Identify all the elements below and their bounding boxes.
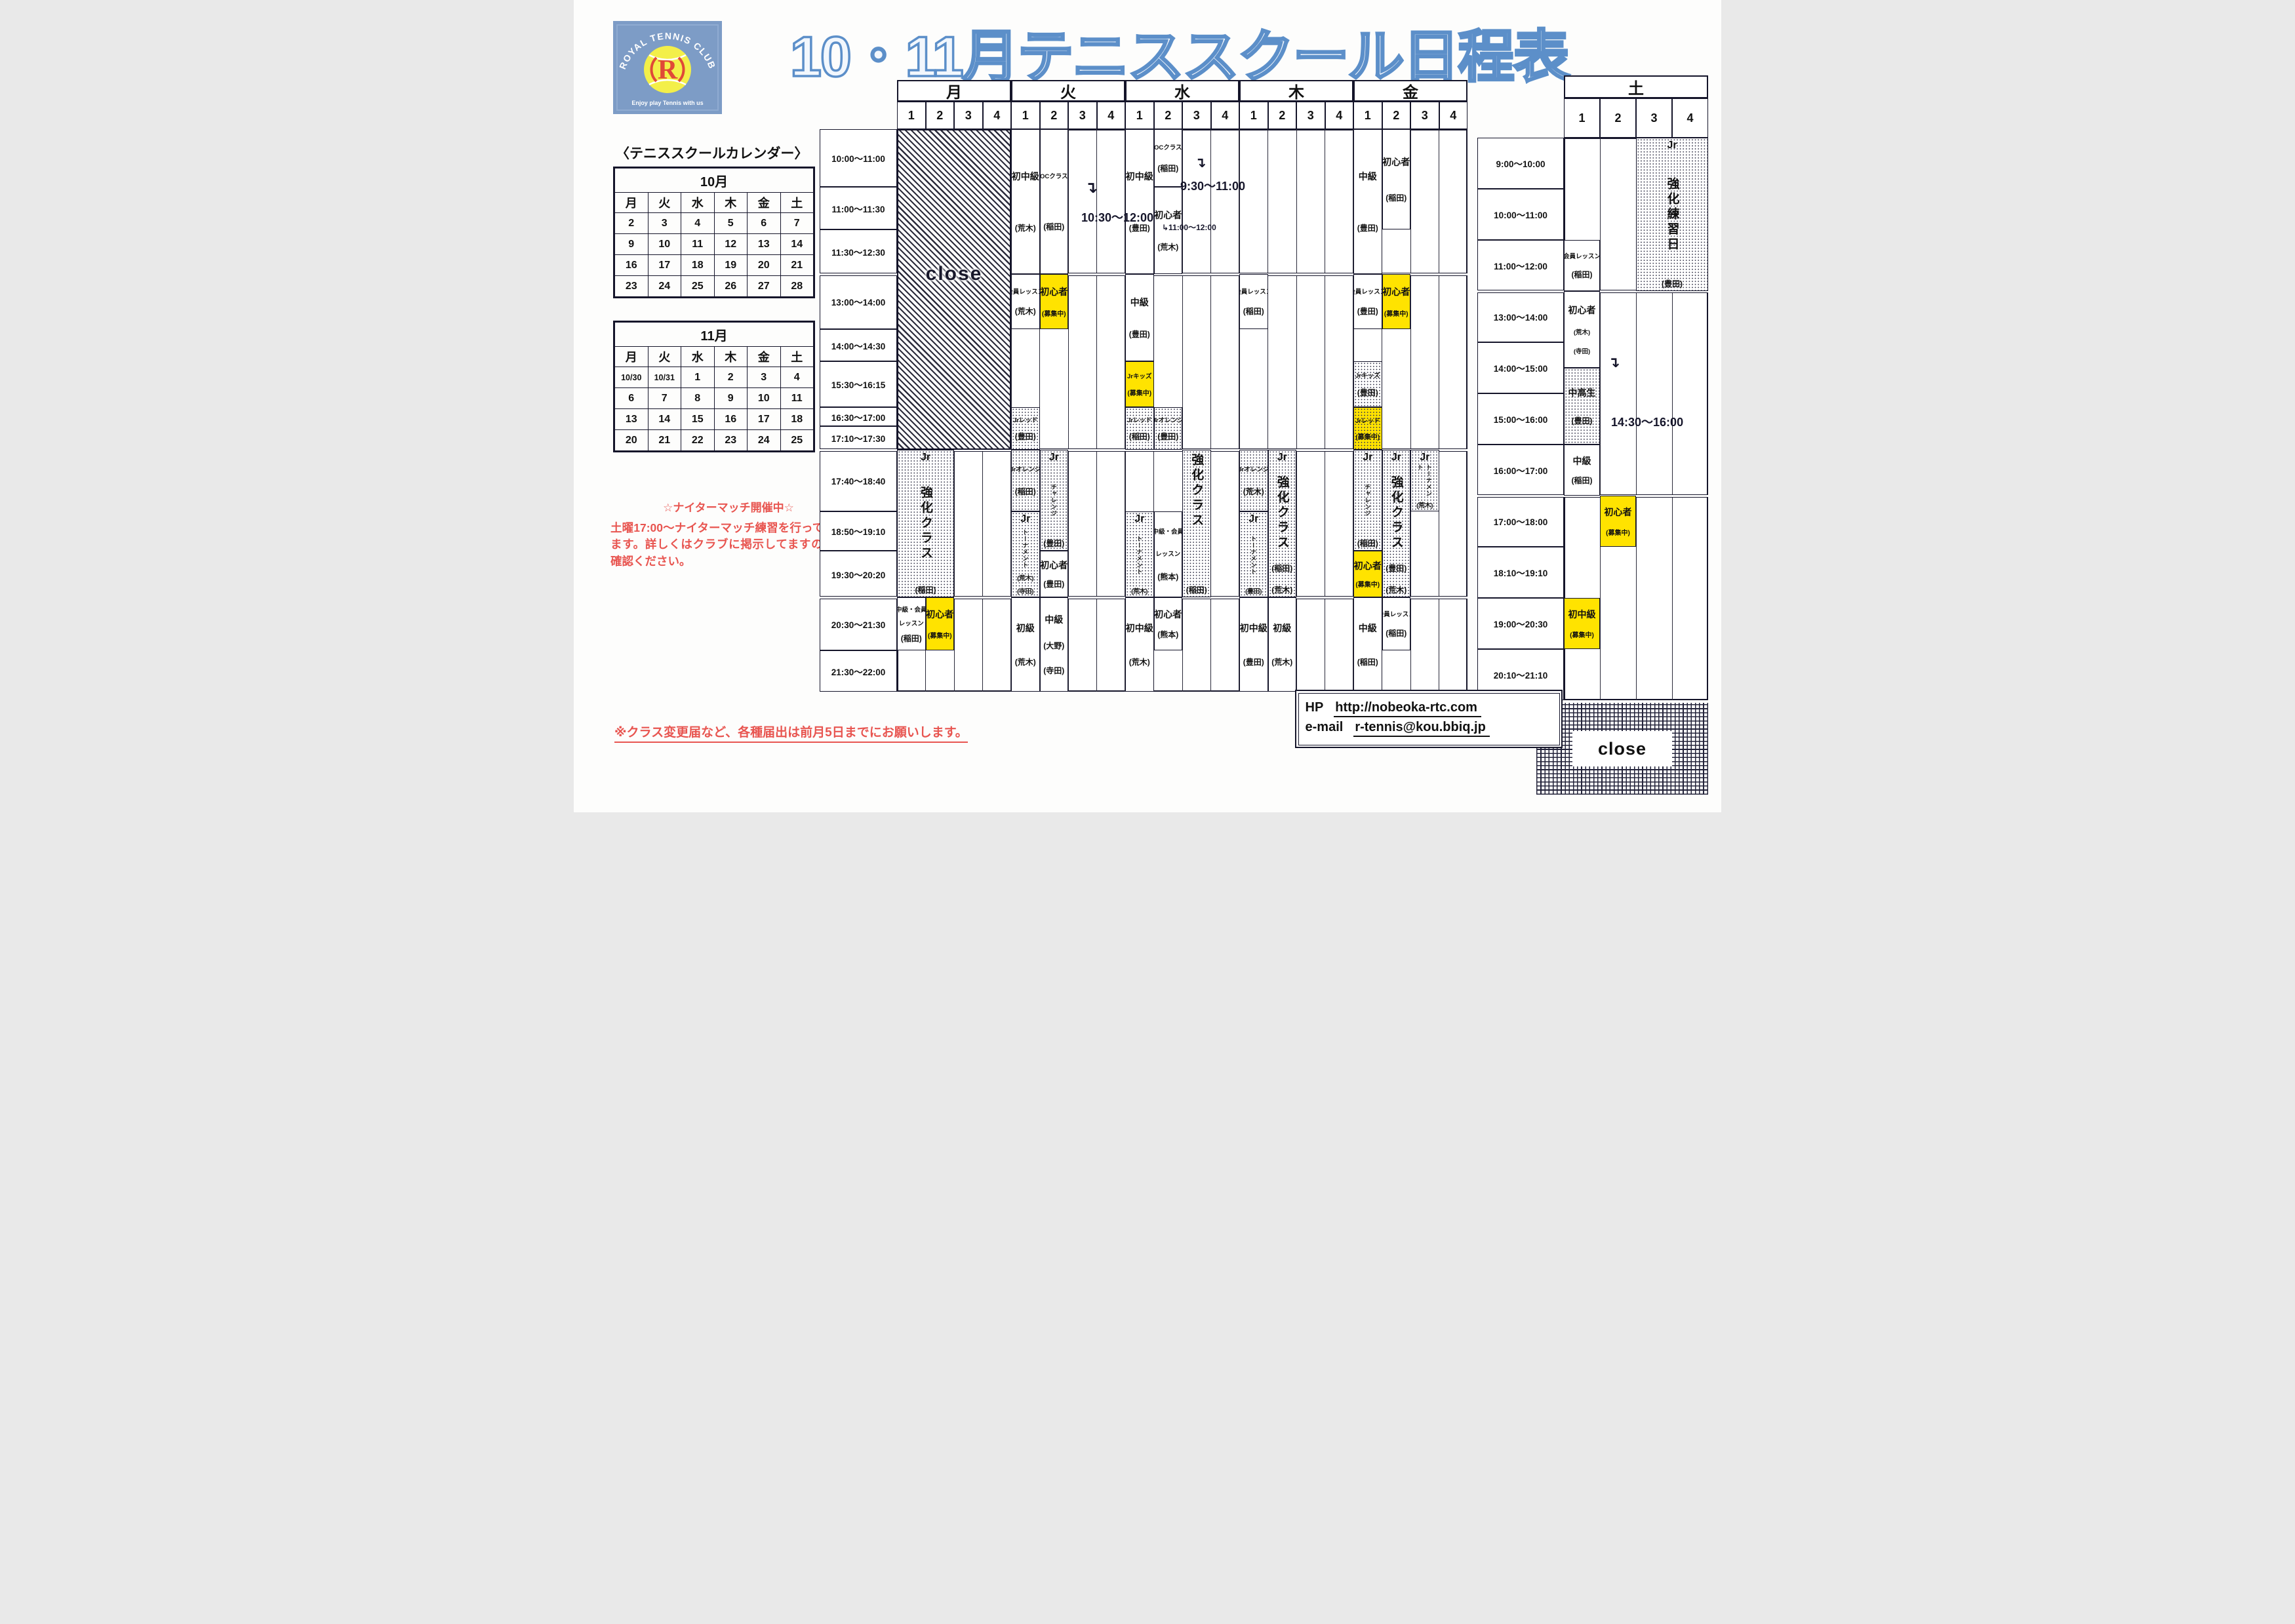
calendar-title: 11月 — [615, 323, 814, 347]
calendar-dow: 金 — [748, 347, 781, 367]
cell-text: (豊田) — [1157, 431, 1178, 442]
calendar-dow: 金 — [748, 193, 781, 213]
calendar-day[interactable]: 25 — [681, 276, 715, 297]
cell-text: 初中級 — [1568, 608, 1596, 621]
hp-label: HP — [1306, 700, 1324, 715]
cell-text: (寺田) — [1017, 586, 1033, 595]
cell-text: トーナメント — [1249, 536, 1258, 575]
schedule-cell[interactable]: 初心者(募集中) — [1382, 274, 1411, 329]
cell-text: 初心者 — [1568, 304, 1596, 317]
saturday-cell[interactable]: Jr強化練習日(豊田) — [1636, 138, 1708, 291]
schedule-cell[interactable]: 会員レッスン(豊田) — [1353, 274, 1382, 329]
cell-text: Jrレッド — [1355, 416, 1380, 425]
cell-text: (荒木) — [1015, 222, 1036, 233]
night-match-note: ☆ナイターマッチ開催中☆ 土曜17:00～ナイターマッチ練習を行っております。詳… — [610, 498, 847, 570]
close-label: close — [1572, 731, 1672, 766]
cell-text: (荒木) — [1416, 500, 1433, 509]
cell-text: レッスン — [899, 618, 924, 627]
cell-text: 初心者 — [1154, 208, 1182, 222]
cell-text: 初級 — [1273, 622, 1291, 635]
court-number: 1 — [897, 102, 926, 129]
calendar-day[interactable]: 11 — [780, 388, 814, 409]
cell-text: (稲田) — [1386, 627, 1407, 639]
cell-text: チャレンジ — [1363, 484, 1372, 517]
schedule-cell[interactable]: 初心者(稲田) — [1382, 129, 1411, 229]
cell-text: (稲田) — [1572, 269, 1593, 280]
calendar-day[interactable]: 23 — [615, 276, 649, 297]
calendar-day[interactable]: 10 — [648, 234, 681, 255]
cell-text: (稲田) — [915, 584, 936, 595]
calendar-dow: 月 — [615, 193, 649, 213]
cell-text: (稲田) — [1386, 192, 1407, 203]
calendar-day[interactable]: 5 — [714, 213, 748, 234]
time-annotation: 14:30～16:00 — [1611, 413, 1683, 430]
calendar-day[interactable]: 13 — [615, 409, 649, 430]
contact-box: HP http://nobeoka-rtc.com e-mail r-tenni… — [1295, 690, 1563, 748]
night-match-body: 土曜17:00～ナイターマッチ練習を行っております。詳しくはクラブに掲示してます… — [610, 520, 847, 570]
calendar-day[interactable]: 26 — [714, 276, 748, 297]
cell-text: 中級 — [1130, 296, 1149, 309]
day-header-4: 金 — [1353, 80, 1467, 102]
calendar-day[interactable]: 13 — [748, 234, 781, 255]
day-header-1: 火 — [1011, 80, 1125, 102]
calendar-day[interactable]: 1 — [681, 367, 715, 388]
court-number: 1 — [1011, 102, 1040, 129]
calendar-day[interactable]: 2 — [714, 367, 748, 388]
schedule-cell[interactable]: 初級(荒木) — [1011, 597, 1040, 692]
calendar-october: 10月月火水木金土2345679101112131416171819202123… — [613, 167, 815, 298]
cell-text: 初心者 — [1154, 608, 1182, 621]
schedule-cell[interactable]: Jr強化クラス(稲田)(荒木) — [1268, 450, 1297, 597]
schedule-cell[interactable]: 会員レッスン(荒木) — [1011, 274, 1040, 329]
court-number: 4 — [983, 102, 1012, 129]
calendar-day[interactable]: 22 — [681, 430, 715, 451]
calendar-day[interactable]: 21 — [648, 430, 681, 451]
night-match-heading: ☆ナイターマッチ開催中☆ — [610, 498, 847, 515]
logo-tagline: Enjoy play Tennis with us — [631, 100, 703, 106]
schedule-cell[interactable]: Jrキッズ(募集中) — [1125, 361, 1154, 407]
court-number: 3 — [954, 102, 983, 129]
schedule-cell[interactable]: Jrキッズ(豊田) — [1353, 361, 1382, 407]
hp-url[interactable]: http://nobeoka-rtc.com — [1334, 700, 1481, 717]
saturday-cell[interactable]: 初中級(募集中) — [1564, 598, 1600, 649]
cell-text: (荒木) — [1131, 586, 1147, 595]
cell-text: (募集中) — [1606, 527, 1630, 537]
calendar-dow: 木 — [714, 193, 748, 213]
schedule-cell[interactable]: close — [897, 129, 1011, 450]
schedule-cell[interactable]: 初中級(荒木) — [1011, 129, 1040, 274]
cell-text: 初心者 — [1040, 285, 1068, 298]
cell-text: 初心者 — [1382, 155, 1410, 168]
schedule-cell[interactable]: Jrトーナメント(荒木) — [1125, 511, 1154, 597]
schedule-cell[interactable]: 強化クラス(稲田) — [1182, 450, 1211, 597]
calendar-day[interactable]: 24 — [748, 430, 781, 451]
schedule-cell[interactable]: Jrレッド(豊田) — [1011, 407, 1040, 450]
schedule-cell[interactable]: 中級(稲田) — [1353, 597, 1382, 692]
court-number: 4 — [1325, 102, 1354, 129]
schedule-cell[interactable]: Jrオレンジ(荒木) — [1239, 450, 1268, 511]
cell-text: (荒木) — [1015, 656, 1036, 667]
cell-text: 中級 — [1359, 622, 1377, 635]
time-slot: 14:00～15:00 — [1477, 342, 1564, 393]
calendar-day[interactable]: 17 — [648, 255, 681, 276]
cell-text: (豊田) — [1662, 278, 1683, 289]
calendar-dow: 火 — [648, 347, 681, 367]
schedule-cell[interactable]: Jrオレンジ(豊田) — [1154, 407, 1183, 450]
schedule-sheet: ROYAL TENNIS CLUB R Enjoy play Tennis wi… — [574, 0, 1721, 812]
calendar-day[interactable]: 6 — [748, 213, 781, 234]
calendar-day[interactable]: 15 — [681, 409, 715, 430]
schedule-cell[interactable]: 初中級(豊田) — [1239, 597, 1268, 692]
schedule-cell[interactable]: 中級(豊田) — [1353, 129, 1382, 274]
cell-text: (稲田) — [1357, 656, 1378, 667]
time-slot: 17:40～18:40 — [820, 450, 897, 511]
close-label: close — [926, 263, 983, 285]
time-slot: 13:00～14:00 — [820, 274, 897, 329]
cell-text: (稲田) — [1357, 538, 1378, 549]
calendar-dow: 水 — [681, 347, 715, 367]
email-address[interactable]: r-tennis@kou.bbiq.jp — [1353, 720, 1490, 737]
cell-text: Jrキッズ — [1127, 371, 1151, 380]
cell-text: 初中級 — [1126, 622, 1153, 635]
cell-text: 初級 — [1016, 622, 1035, 635]
calendar-november: 11月月火水木金土10/3010/31123467891011131415161… — [613, 321, 815, 452]
cell-text: 初中級 — [1012, 170, 1039, 183]
cell-text: トーナメント — [1135, 536, 1144, 575]
calendar-day[interactable]: 16 — [615, 255, 649, 276]
cell-text: (豊田) — [1129, 328, 1150, 340]
cell-text: (寺田) — [1574, 346, 1590, 355]
cell-text: Jrオレンジ — [1239, 464, 1268, 473]
court-number: 2 — [926, 102, 955, 129]
grid-line — [1325, 129, 1325, 692]
time-slot: 9:00～10:00 — [1477, 138, 1564, 189]
court-number: 4 — [1439, 102, 1468, 129]
time-slot: 11:30～12:30 — [820, 229, 897, 274]
cell-text: Jr — [1134, 513, 1144, 525]
court-number: 3 — [1068, 102, 1097, 129]
day-header-sat: 土 — [1564, 75, 1708, 98]
cell-text: 中級 — [1045, 613, 1063, 626]
schedule-cell[interactable]: OCクラス(稲田) — [1040, 129, 1069, 274]
cell-text: (荒木) — [1574, 327, 1590, 336]
time-slot: 17:00～18:00 — [1477, 496, 1564, 547]
court-number: 1 — [1353, 102, 1382, 129]
calendar-day[interactable]: 27 — [748, 276, 781, 297]
time-slot: 19:30～20:20 — [820, 551, 897, 597]
cell-text: (豊田) — [1357, 306, 1378, 317]
calendar-day[interactable]: 19 — [714, 255, 748, 276]
cell-text: 会員レッスン — [1382, 609, 1411, 618]
cell-text: (豊田) — [1572, 415, 1593, 426]
calendar-day[interactable]: 18 — [780, 409, 814, 430]
cell-text: (稲田) — [1243, 306, 1264, 317]
grid-line — [1439, 129, 1439, 692]
calendar-dow: 土 — [780, 347, 814, 367]
deadline-note: ※クラス変更届など、各種届出は前月5日までにお願いします。 — [614, 723, 968, 743]
calendar-dow: 火 — [648, 193, 681, 213]
cell-text: 中級・会員 — [1154, 526, 1183, 536]
calendar-day[interactable]: 10/31 — [648, 367, 681, 388]
cell-text: 中級 — [1573, 454, 1591, 467]
calendar-day[interactable]: 24 — [648, 276, 681, 297]
calendar-day[interactable]: 16 — [714, 409, 748, 430]
cell-text: (豊田) — [1357, 222, 1378, 233]
time-slot: 10:00～11:00 — [820, 129, 897, 187]
cell-text: (熊本) — [1157, 629, 1178, 640]
cell-text: Jr — [1020, 513, 1030, 525]
schedule-cell[interactable]: Jr強化クラス(豊田)(荒木) — [1382, 450, 1411, 597]
calendar-day[interactable]: 14 — [780, 234, 814, 255]
cell-text: (荒木) — [1157, 241, 1178, 252]
cell-text: Jr — [1248, 513, 1258, 525]
calendar-day[interactable]: 10 — [748, 388, 781, 409]
cell-text: 初心者 — [926, 608, 953, 621]
court-number: 4 — [1672, 98, 1708, 138]
saturday-cell[interactable]: 初心者(募集中) — [1600, 496, 1636, 547]
time-slot: 21:30～22:00 — [820, 650, 897, 692]
cell-text: (荒木) — [1129, 656, 1150, 667]
schedule-cell[interactable]: 初級(荒木) — [1268, 597, 1297, 692]
cell-text: Jr — [1420, 452, 1429, 464]
calendar-day[interactable]: 4 — [681, 213, 715, 234]
calendar-day[interactable]: 23 — [714, 430, 748, 451]
cell-text: (稲田) — [901, 633, 922, 644]
cell-text: Jrオレンジ — [1011, 464, 1040, 473]
court-number: 2 — [1154, 102, 1183, 129]
schedule-cell[interactable]: Jrチャレンジ(稲田) — [1353, 450, 1382, 551]
schedule-cell[interactable]: 中級(大野)(寺田) — [1040, 597, 1069, 692]
calendar-day[interactable]: 4 — [780, 367, 814, 388]
court-number: 3 — [1296, 102, 1325, 129]
court-number: 4 — [1097, 102, 1126, 129]
schedule-cell[interactable]: Jrレッド(稲田) — [1125, 407, 1154, 450]
schedule-cell[interactable]: 中級(豊田) — [1125, 274, 1154, 361]
calendar-day[interactable]: 9 — [615, 234, 649, 255]
time-slot: 13:00～14:00 — [1477, 291, 1564, 342]
cell-text: Jr — [1667, 140, 1677, 151]
court-number: 2 — [1040, 102, 1069, 129]
calendar-dow: 土 — [780, 193, 814, 213]
cell-text: Jrキッズ — [1355, 370, 1380, 380]
cell-text: (募集中) — [1127, 387, 1151, 397]
time-slot: 18:10～19:10 — [1477, 547, 1564, 598]
schedule-cell[interactable]: Jr強化クラス(稲田) — [897, 450, 954, 597]
court-number: 3 — [1410, 102, 1439, 129]
cell-text: (稲田) — [1157, 163, 1178, 174]
cell-text: (募集中) — [1570, 629, 1594, 639]
cell-text: (募集中) — [928, 630, 952, 640]
cell-text: 会員レッスン — [1564, 251, 1600, 260]
cell-text: (稲田) — [1015, 486, 1036, 497]
cell-text: (豊田) — [1386, 563, 1407, 574]
cell-text: (募集中) — [1384, 308, 1408, 318]
cell-text: トーナメント — [1021, 529, 1029, 568]
cell-text: レッスン — [1155, 549, 1180, 558]
calendar-dow: 木 — [714, 347, 748, 367]
cell-text: Jrレッド — [1013, 415, 1037, 424]
calendar-dow: 月 — [615, 347, 649, 367]
schedule-cell[interactable]: 初中級(豊田) — [1125, 129, 1154, 274]
email-label: e-mail — [1306, 720, 1344, 735]
cell-text: (稲田) — [1043, 221, 1064, 232]
cell-text: 初心者 — [1605, 505, 1632, 519]
time-slot: 15:30～16:15 — [820, 361, 897, 407]
cell-text: 強化クラス — [919, 486, 932, 561]
calendar-day[interactable]: 3 — [748, 367, 781, 388]
calendar-day[interactable]: 12 — [714, 234, 748, 255]
cell-text: (豊田) — [1243, 656, 1264, 667]
cell-text: 会員レッスン — [1011, 287, 1040, 296]
time-slot: 14:00～14:30 — [820, 329, 897, 361]
cell-text: (稲田) — [1572, 475, 1593, 486]
saturday-cell[interactable]: 初心者(荒木)(寺田) — [1564, 291, 1600, 368]
day-header-0: 月 — [897, 80, 1011, 102]
court-number: 1 — [1239, 102, 1268, 129]
cell-text: (豊田) — [1245, 586, 1262, 595]
cell-text: OCクラス — [1040, 171, 1068, 180]
day-header-2: 水 — [1125, 80, 1239, 102]
schedule-cell[interactable]: 初心者(豊田) — [1040, 551, 1069, 597]
calendar-day[interactable]: 7 — [648, 388, 681, 409]
cell-text: Jr — [1049, 452, 1059, 464]
time-slot: 16:30～17:00 — [820, 407, 897, 426]
time-slot: 18:50～19:10 — [820, 511, 897, 551]
calendar-day[interactable]: 18 — [681, 255, 715, 276]
saturday-cell[interactable]: 中高生(豊田) — [1564, 368, 1600, 445]
time-annotation: ↴ — [1608, 354, 1620, 371]
schedule-cell[interactable]: Jrチャレンジ(豊田) — [1040, 450, 1069, 551]
time-annotation: ↳11:00～12:00 — [1162, 222, 1216, 233]
saturday-cell[interactable]: 会員レッスン(稲田) — [1564, 240, 1600, 291]
cell-text: Jr — [1391, 452, 1401, 464]
cell-text: Jr — [1277, 452, 1287, 464]
schedule-cell[interactable]: 初心者(募集中) — [1040, 274, 1069, 329]
cell-text: トーナメント — [1416, 464, 1433, 500]
calendar-day[interactable]: 7 — [780, 213, 814, 234]
cell-text: (豊田) — [1015, 431, 1036, 442]
cell-text: (豊田) — [1357, 387, 1378, 398]
saturday-cell[interactable]: 中級(稲田) — [1564, 445, 1600, 496]
schedule-cell[interactable]: 会員レッスン(稲田) — [1239, 274, 1268, 329]
schedule-cell[interactable]: 初心者(募集中) — [926, 597, 955, 650]
cell-text: (豊田) — [1043, 578, 1064, 589]
cell-text: 中級 — [1359, 170, 1377, 183]
court-number: 1 — [1564, 98, 1600, 138]
grid-line — [1210, 129, 1211, 692]
cell-text: 初中級 — [1240, 622, 1267, 635]
cell-text: 強化クラス — [1276, 475, 1288, 551]
time-slot: 19:00～20:30 — [1477, 598, 1564, 649]
cell-text: 中高生 — [1568, 386, 1596, 399]
cell-text: 初心者 — [1382, 285, 1410, 298]
time-annotation: ↴ — [1195, 155, 1207, 171]
schedule-cell[interactable]: OCクラス(稲田) — [1154, 129, 1183, 187]
cell-text: (荒木) — [1271, 584, 1292, 595]
time-slot: 11:00～12:00 — [1477, 240, 1564, 291]
court-number: 3 — [1636, 98, 1672, 138]
cell-text: (荒木) — [1386, 584, 1407, 595]
schedule-cell[interactable]: Jrトーナメント(豊田) — [1239, 511, 1268, 597]
calendar-day[interactable]: 20 — [615, 430, 649, 451]
cell-text: 中級・会員 — [897, 604, 926, 614]
schedule-cell[interactable]: 初中級(荒木) — [1125, 597, 1154, 692]
logo-monogram: R — [658, 55, 678, 85]
calendar-title: 10月 — [615, 168, 814, 193]
calendar-day[interactable]: 14 — [648, 409, 681, 430]
cell-text: (熊本) — [1157, 571, 1178, 582]
cell-text: Jrレッド — [1127, 415, 1151, 424]
calendar-day[interactable]: 6 — [615, 388, 649, 409]
calendar-day[interactable]: 9 — [714, 388, 748, 409]
cell-text: 初心者 — [1354, 559, 1382, 572]
court-number: 2 — [1600, 98, 1636, 138]
cell-text: (荒木) — [1017, 573, 1033, 582]
time-slot: 10:00～11:00 — [1477, 189, 1564, 240]
cell-text: (稲田) — [1129, 431, 1150, 442]
cell-text: (募集中) — [1355, 579, 1380, 589]
cell-text: 強化クラス — [1390, 475, 1403, 551]
time-slot: 15:00～16:00 — [1477, 393, 1564, 445]
time-slot: 20:30～21:30 — [820, 597, 897, 650]
schedule-cell[interactable]: 会員レッスン(稲田) — [1382, 597, 1411, 650]
cell-text: (稲田) — [1271, 563, 1292, 574]
calendar-day[interactable]: 17 — [748, 409, 781, 430]
schedule-cell[interactable]: Jrトーナメント(荒木) — [1410, 450, 1439, 511]
calendar-day[interactable]: 11 — [681, 234, 715, 255]
calendar-dow: 水 — [681, 193, 715, 213]
cell-text: Jr — [921, 452, 930, 464]
club-logo: ROYAL TENNIS CLUB R Enjoy play Tennis wi… — [613, 21, 722, 114]
cell-text: 初中級 — [1126, 170, 1153, 183]
calendar-day[interactable]: 2 — [615, 213, 649, 234]
calendar-day[interactable]: 28 — [780, 276, 814, 297]
court-number: 1 — [1125, 102, 1154, 129]
calendar-caption: 〈テニススクールカレンダー〉 — [616, 143, 819, 163]
calendar-day[interactable]: 3 — [648, 213, 681, 234]
calendar-day[interactable]: 20 — [748, 255, 781, 276]
schedule-cell[interactable]: Jrオレンジ(稲田) — [1011, 450, 1040, 511]
cell-text: (募集中) — [1042, 308, 1066, 318]
schedule-cell[interactable]: 中級・会員レッスン(稲田) — [897, 597, 926, 650]
schedule-cell[interactable]: Jrトーナメント(荒木)(寺田) — [1011, 511, 1040, 597]
cell-text: (荒木) — [1015, 306, 1036, 317]
calendar-day[interactable]: 25 — [780, 430, 814, 451]
cell-text: 強化練習日 — [1666, 177, 1679, 252]
time-slot: 17:10～17:30 — [820, 426, 897, 450]
schedule-cell[interactable]: 初心者(募集中) — [1353, 551, 1382, 597]
calendar-day[interactable]: 8 — [681, 388, 715, 409]
cell-text: 会員レッスン — [1353, 287, 1382, 296]
cell-text: Jr — [1363, 452, 1372, 464]
time-annotation: ↴ — [1085, 178, 1098, 197]
schedule-cell[interactable]: 中級・会員レッスン(熊本) — [1154, 511, 1183, 597]
calendar-day[interactable]: 21 — [780, 255, 814, 276]
court-number: 4 — [1211, 102, 1240, 129]
time-annotation: 9:30～11:00 — [1180, 177, 1245, 194]
cell-text: チャレンジ — [1050, 484, 1058, 517]
cell-text: 会員レッスン — [1239, 287, 1268, 296]
cell-text: Jrオレンジ — [1154, 415, 1183, 424]
time-annotation: 10:30～12:00 — [1081, 208, 1153, 226]
schedule-cell[interactable]: 初心者(熊本) — [1154, 597, 1183, 650]
cell-text: (募集中) — [1355, 431, 1380, 441]
time-slot: 11:00～11:30 — [820, 187, 897, 229]
schedule-cell[interactable]: Jrレッド(募集中) — [1353, 407, 1382, 450]
calendar-day[interactable]: 10/30 — [615, 367, 649, 388]
court-number: 2 — [1268, 102, 1297, 129]
time-slot: 16:00～17:00 — [1477, 445, 1564, 496]
